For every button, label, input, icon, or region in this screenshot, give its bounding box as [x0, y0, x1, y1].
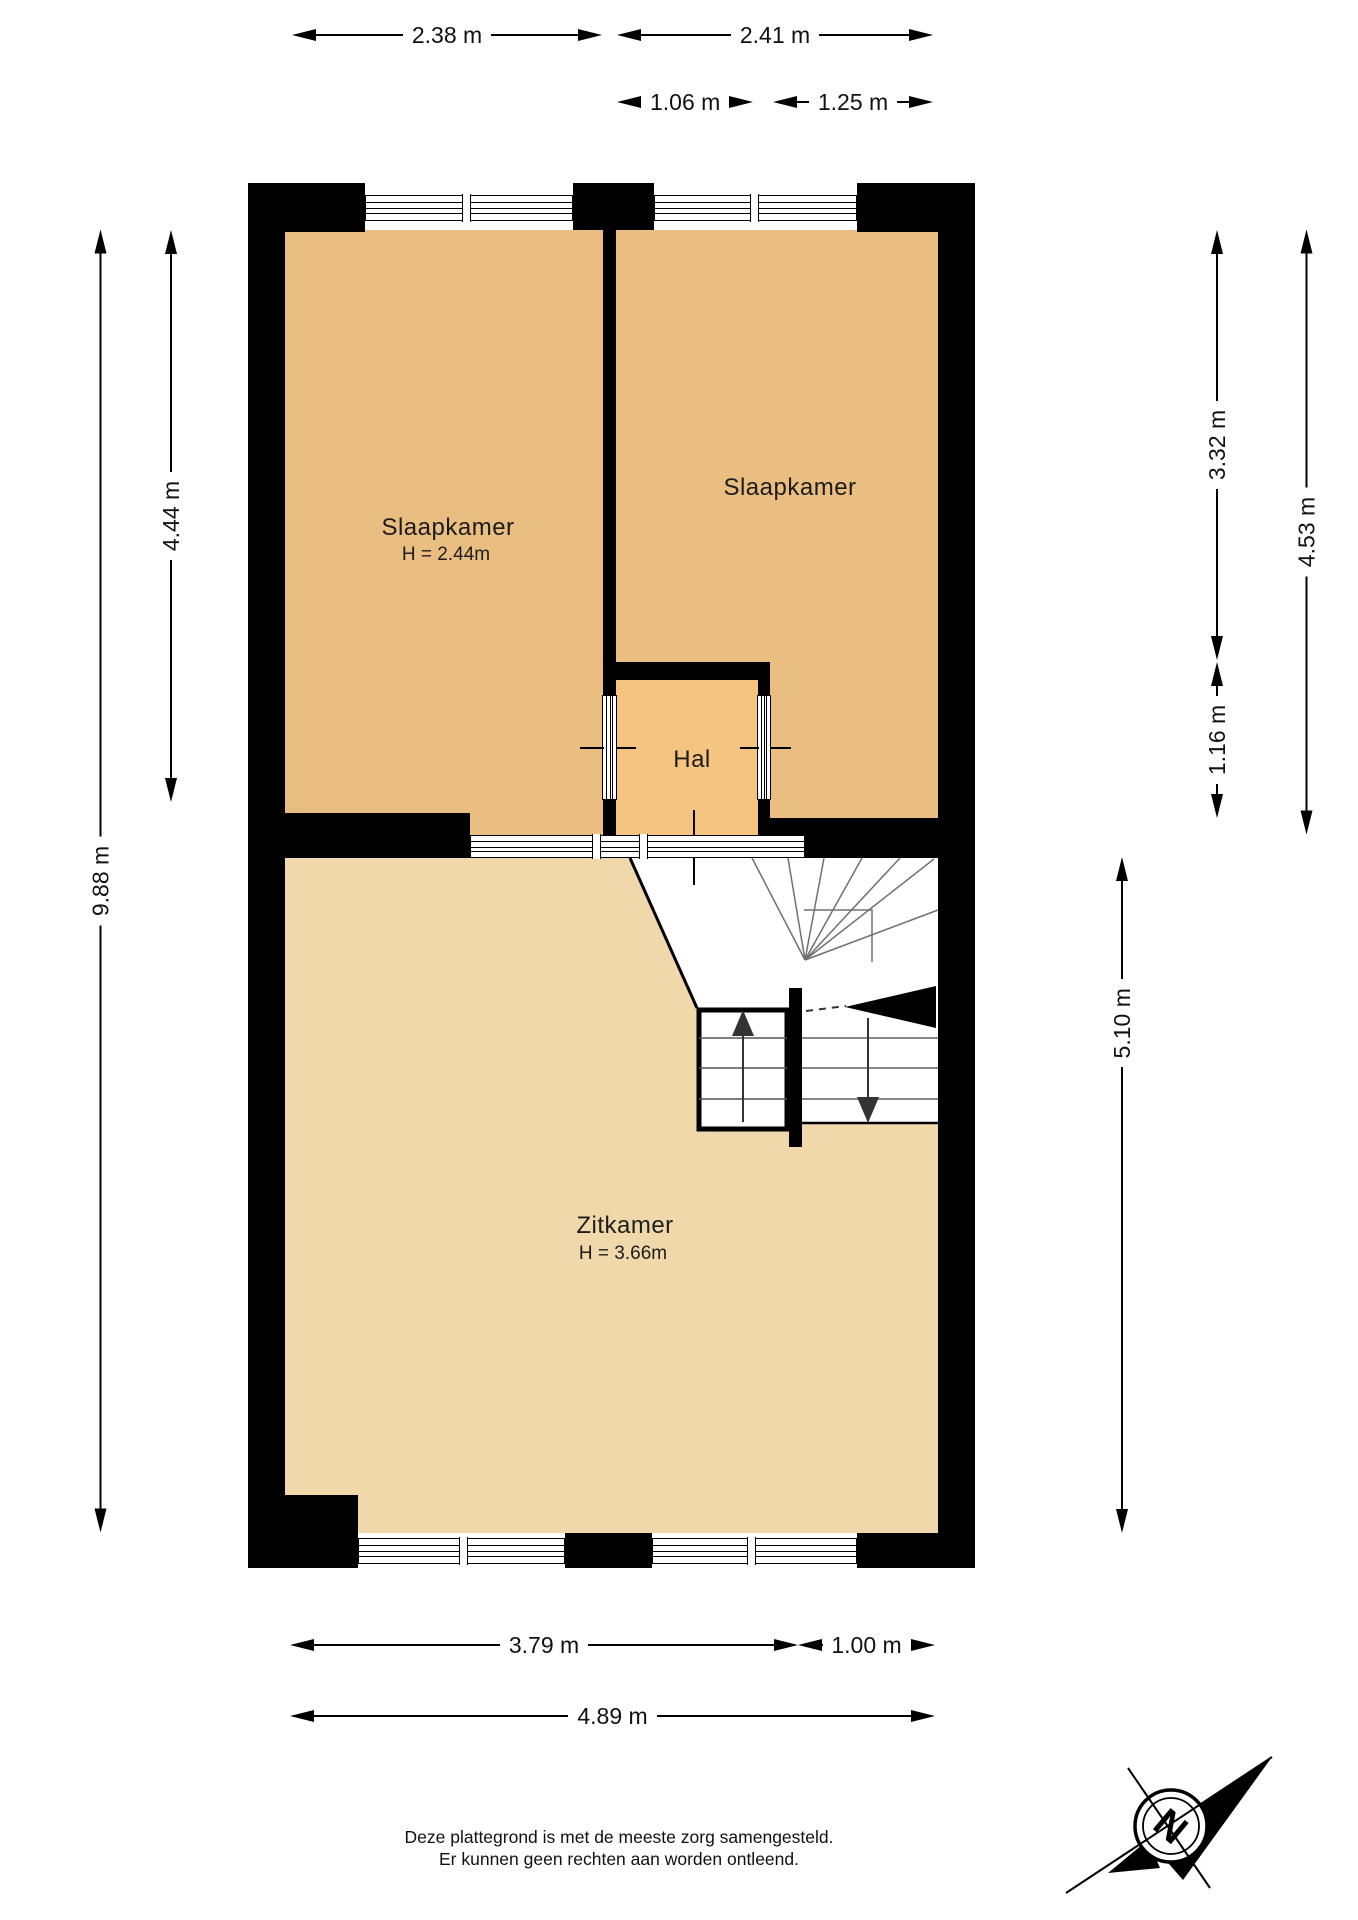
wall-right: [938, 183, 975, 1568]
dim-total-width: 4.89 m: [290, 1701, 935, 1731]
bedroom1-label: Slaapkamer: [381, 514, 514, 542]
opening-indicator: [693, 810, 695, 835]
hall-left-door-panel: [602, 695, 617, 800]
glazed-wall-interior: [470, 835, 805, 858]
dim-total-depth: 9.88 m: [86, 230, 116, 1533]
dim-bedroom1-depth: 4.44 m: [156, 230, 186, 802]
staircase: [620, 850, 940, 1150]
dim-hall-depth: 1.16 m: [1202, 662, 1232, 818]
door-tick: [740, 747, 759, 749]
hall-label: Hal: [673, 746, 711, 774]
wall-top-middle: [573, 183, 654, 230]
living-label: Zitkamer: [576, 1212, 673, 1240]
wall-bottom-left-corner: [248, 1495, 358, 1568]
north-compass-icon: N: [1040, 1735, 1290, 1920]
living-ceiling-height: H = 3.66m: [579, 1243, 667, 1265]
dim-door-width: 1.00 m: [798, 1630, 935, 1660]
wall-bottom-middle: [565, 1533, 652, 1568]
dim-bedroom2-total-depth: 4.53 m: [1292, 230, 1322, 835]
stair-divider-wall: [789, 988, 802, 1147]
window-living-south-right: [652, 1538, 857, 1564]
opening-indicator: [693, 857, 695, 885]
dim-bedroom1-width: 2.38 m: [292, 20, 602, 50]
window-living-south-left: [358, 1538, 565, 1564]
wall-bedroom-divider: [603, 230, 616, 680]
bedroom2-label: Slaapkamer: [723, 474, 856, 502]
dim-bedroom2-depth: 3.32 m: [1202, 230, 1232, 660]
dim-window-right: 1.25 m: [773, 87, 933, 117]
door-tick: [580, 747, 604, 749]
window-bedroom2-north: [654, 195, 857, 221]
dim-window-left: 1.06 m: [617, 87, 753, 117]
hall-right-door-panel: [757, 695, 771, 800]
floorplan-page: Slaapkamer H = 2.44m Slaapkamer Hal Zitk…: [0, 0, 1358, 1920]
dim-bedroom2-width: 2.41 m: [617, 20, 933, 50]
dim-living-window-width: 3.79 m: [290, 1630, 798, 1660]
wall-hall-north: [603, 662, 770, 680]
bedroom1-ceiling-height: H = 2.44m: [402, 544, 490, 566]
door-tick: [616, 747, 636, 749]
wall-bedroom1-south: [248, 813, 470, 858]
disclaimer-text: Deze plattegrond is met de meeste zorg s…: [405, 1826, 834, 1870]
door-tick: [770, 747, 791, 749]
window-bedroom1-north: [365, 195, 573, 221]
dim-living-depth: 5.10 m: [1107, 857, 1137, 1533]
wall-bottom-right-corner: [857, 1533, 975, 1568]
wall-hall-left-stub: [603, 797, 616, 835]
wall-left: [248, 183, 285, 1568]
